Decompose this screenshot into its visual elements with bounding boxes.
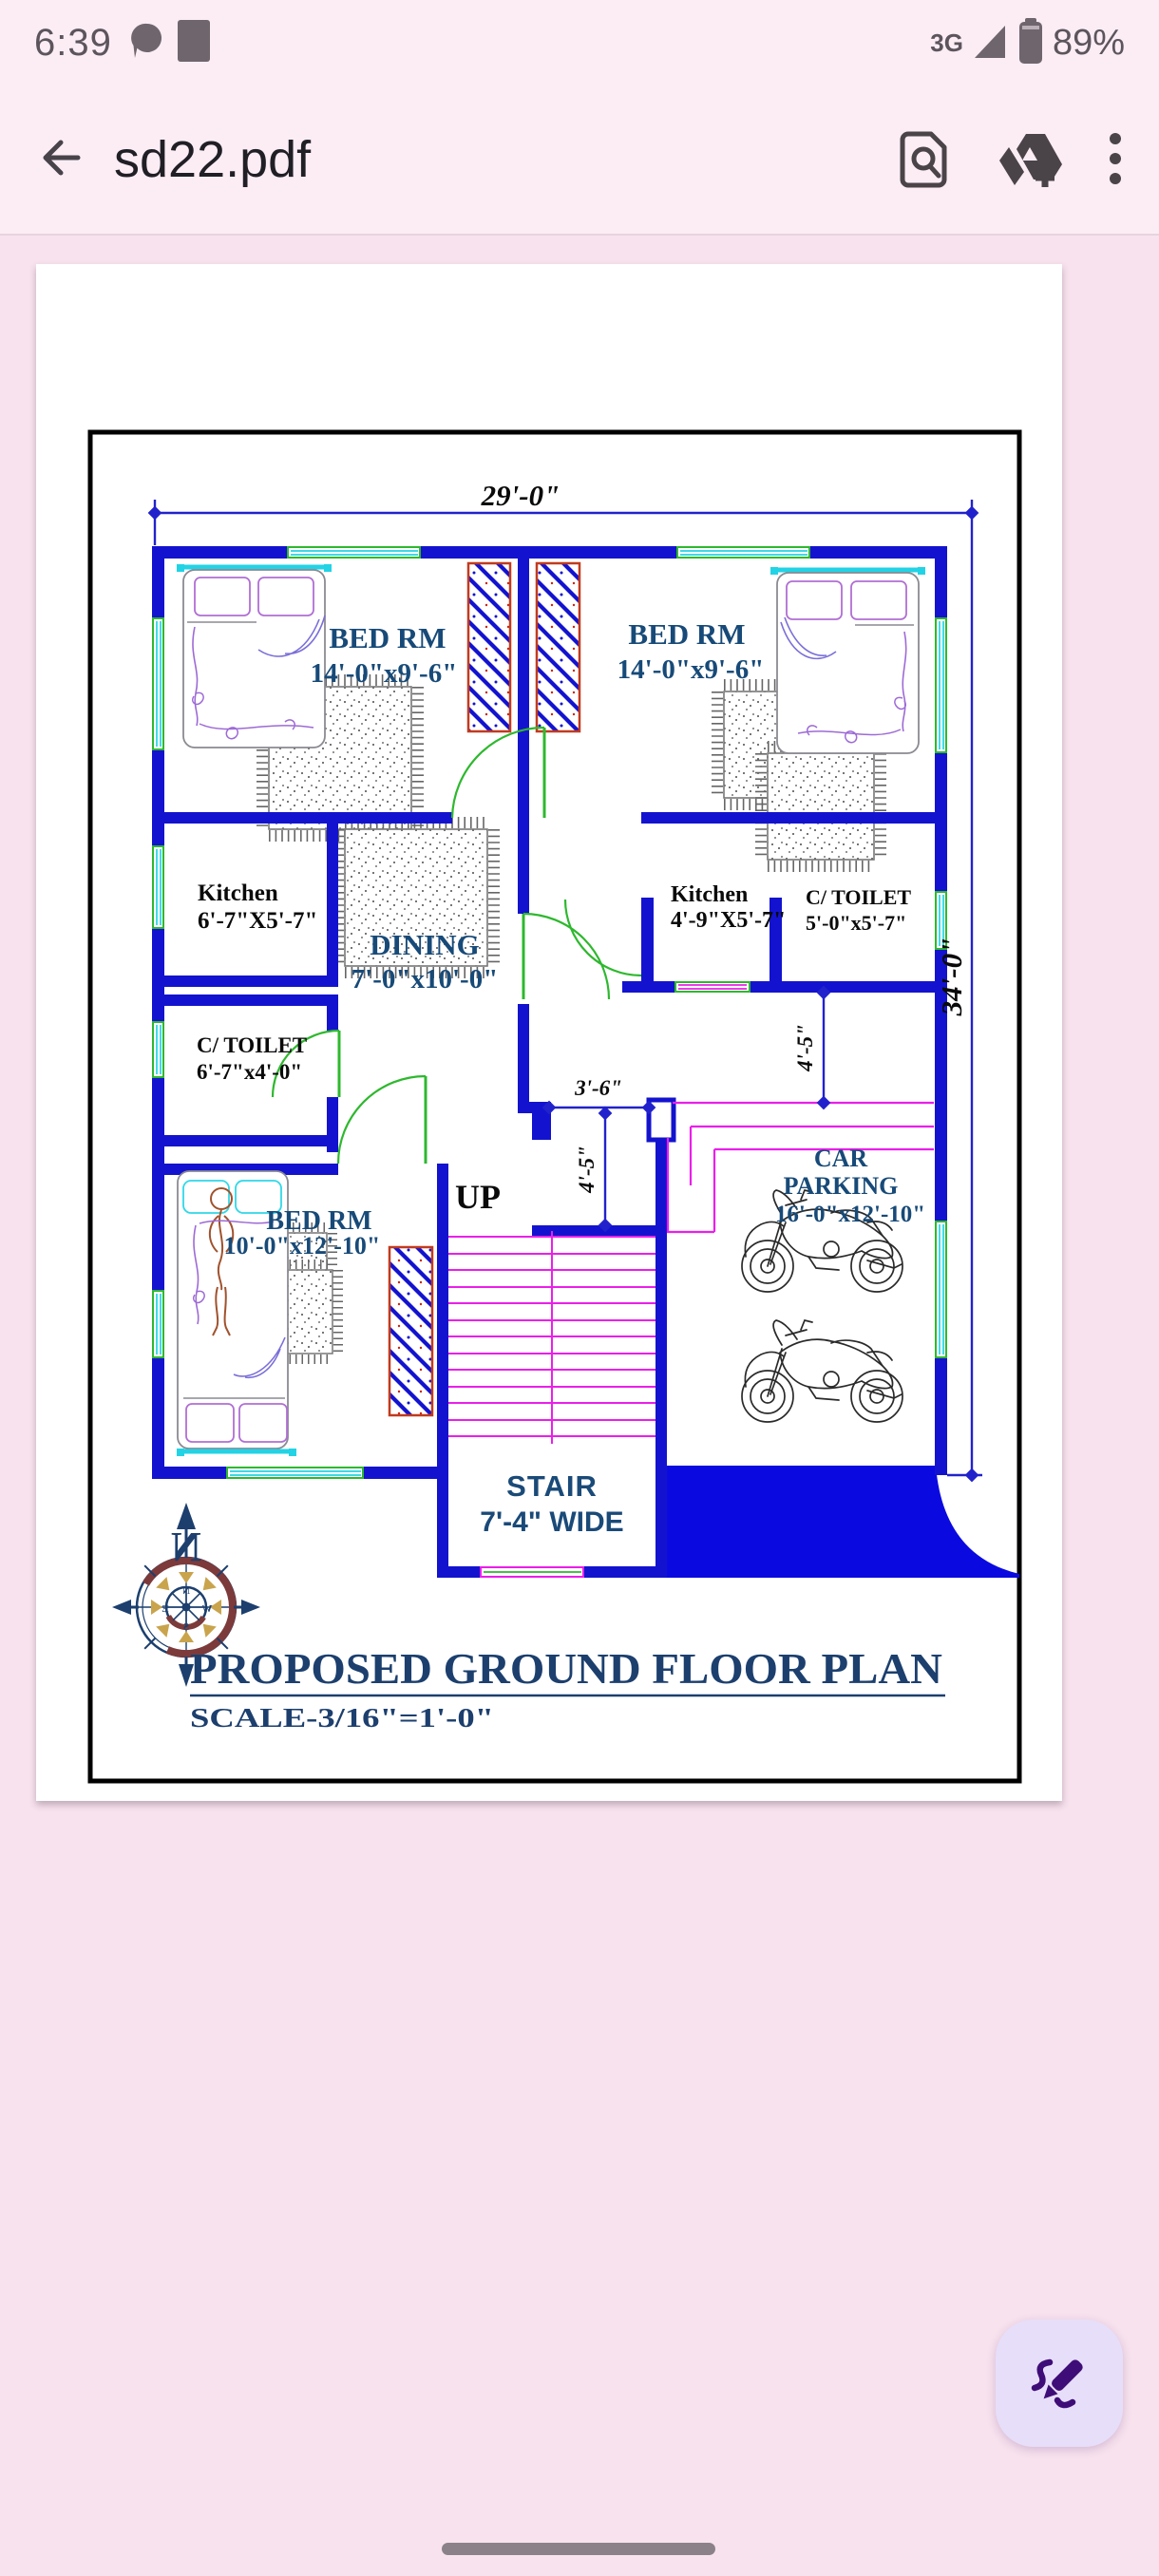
overflow-menu-button[interactable] — [1108, 131, 1123, 188]
stair-treads — [448, 1231, 655, 1444]
compass-e: E — [161, 1603, 168, 1615]
battery-percent-label: 89% — [1053, 23, 1125, 64]
compass-w: W — [202, 1603, 213, 1615]
status-time: 6:39 — [34, 22, 112, 65]
dim-width-label: 29'-0" — [481, 479, 560, 512]
annotate-fab[interactable] — [996, 2320, 1123, 2447]
room-size-toilet1: 6'-7"x4'-0" — [197, 1060, 302, 1084]
room-size-toilet2: 5'-0"x5'-7" — [806, 911, 906, 935]
compass-n: N — [182, 1585, 190, 1597]
room-label-kitchen2: Kitchen — [671, 882, 748, 907]
pen-scribble-icon — [1029, 2353, 1090, 2414]
bed-2 — [770, 567, 925, 753]
add-to-drive-button[interactable] — [996, 128, 1064, 191]
gesture-nav-pill[interactable] — [442, 2543, 715, 2555]
network-type-label: 3G — [930, 28, 963, 58]
bed-1 — [177, 564, 332, 748]
room-label-stair: STAIR — [506, 1469, 598, 1503]
back-button[interactable] — [36, 133, 85, 187]
room-size-bed3: 10'-0"x12'-10" — [224, 1232, 381, 1260]
room-size-kitchen2: 4'-9"X5'-7" — [671, 908, 786, 933]
room-size-dining: 7'-0"x10'-0" — [351, 964, 499, 994]
room-label-toilet2: C/ TOILET — [806, 885, 911, 909]
room-label-kitchen1: Kitchen — [198, 881, 278, 906]
pdf-viewer-area[interactable]: 29'-0" 34'-0" 3'-6" 4'-5" 4'-5" BED RM 1… — [0, 236, 1159, 2576]
status-bar: 6:39 3G 89% — [0, 0, 1159, 85]
dim-height-label: 34'-0" — [935, 938, 968, 1017]
room-label-parking-2: PARKING — [784, 1172, 899, 1200]
pdf-page[interactable]: 29'-0" 34'-0" 3'-6" 4'-5" 4'-5" BED RM 1… — [36, 264, 1062, 1801]
room-size-kitchen1: 6'-7"X5'-7" — [198, 908, 317, 934]
notification-bubble-icon — [129, 20, 165, 66]
room-label-bed2: BED RM — [628, 617, 745, 651]
plan-scale: SCALE-3/16"=1'-0" — [190, 1704, 494, 1733]
floor-plan-drawing: 29'-0" 34'-0" 3'-6" 4'-5" 4'-5" BED RM 1… — [36, 264, 1062, 1801]
signal-icon — [971, 20, 1009, 66]
room-size-bed2: 14'-0"x9'-6" — [617, 654, 765, 685]
document-title: sd22.pdf — [114, 130, 311, 189]
compass-s: S — [183, 1621, 189, 1633]
dim-porch-label: 4'-5" — [793, 1024, 817, 1072]
plan-title: PROPOSED GROUND FLOOR PLAN — [190, 1644, 942, 1693]
screenshot-icon — [175, 17, 213, 69]
room-label-bed1: BED RM — [329, 621, 446, 654]
phone-screen: 6:39 3G 89% sd22.pdf — [0, 0, 1159, 2576]
compass-north-letter: N — [171, 1524, 201, 1570]
dim-hall-width-label: 3'-6" — [574, 1076, 622, 1100]
app-bar: sd22.pdf — [0, 85, 1159, 234]
room-label-toilet1: C/ TOILET — [197, 1033, 307, 1057]
motorcycle-2 — [742, 1320, 902, 1422]
room-label-parking-1: CAR — [814, 1145, 868, 1172]
dim-hall-depth-label: 4'-5" — [575, 1146, 598, 1194]
room-label-dining: DINING — [370, 928, 479, 961]
room-size-bed1: 14'-0"x9'-6" — [311, 658, 458, 689]
room-size-parking: 16'-0"x12'-10" — [775, 1202, 925, 1227]
room-size-stair: 7'-4" WIDE — [480, 1506, 623, 1538]
find-in-document-button[interactable] — [899, 128, 952, 191]
stair-up-label: UP — [455, 1178, 501, 1216]
battery-icon — [1016, 16, 1045, 70]
entrance-ramp — [667, 1466, 1019, 1578]
